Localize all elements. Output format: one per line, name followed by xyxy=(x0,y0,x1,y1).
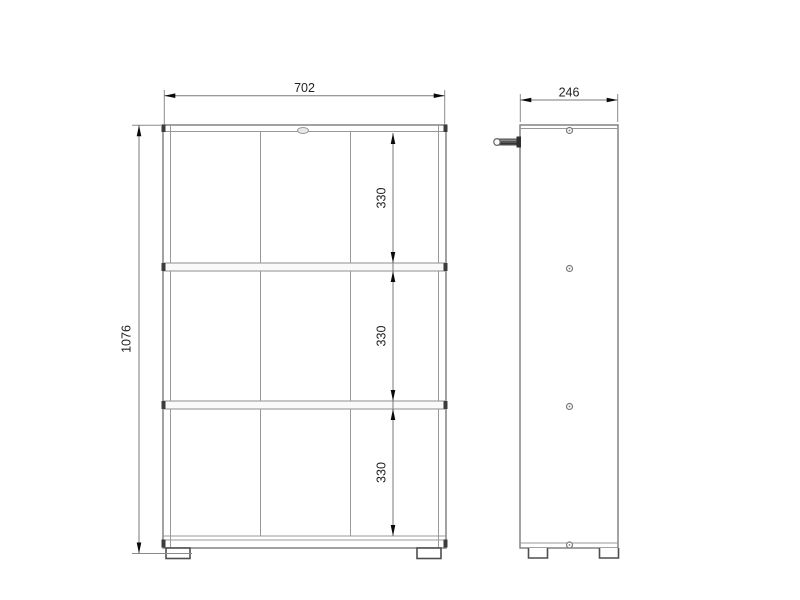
dimension-side-depth: 246 xyxy=(520,86,617,123)
side-depth-label: 246 xyxy=(559,86,580,100)
front-view xyxy=(162,125,448,559)
connector-mark xyxy=(162,540,166,548)
front-height-label: 1076 xyxy=(120,325,134,353)
shelf-spacing-label-3: 330 xyxy=(375,462,389,483)
front-body-outline xyxy=(163,125,446,548)
side-view xyxy=(494,125,619,558)
side-left-foot xyxy=(529,548,548,558)
screw-hole-center xyxy=(569,268,571,270)
connector-mark xyxy=(444,263,448,271)
dimension-front-width: 702 xyxy=(164,81,444,124)
side-body-outline xyxy=(520,125,618,548)
screw-hole-center xyxy=(569,406,571,408)
side-right-foot xyxy=(600,548,619,558)
connector-mark xyxy=(444,540,448,548)
front-width-label: 702 xyxy=(294,81,315,95)
arrowhead-right xyxy=(607,98,618,103)
front-right-foot xyxy=(417,548,441,559)
shelf-spacing-label-1: 330 xyxy=(375,188,389,209)
arrowhead-right xyxy=(434,93,445,98)
connector-mark xyxy=(444,401,448,409)
shelf-spacing-label-2: 330 xyxy=(375,326,389,347)
arrowhead-left xyxy=(164,93,175,98)
technical-drawing-canvas: 702 1076 330 330 330 xyxy=(0,0,800,600)
front-shelf-2 xyxy=(163,401,446,409)
connector-mark xyxy=(162,401,166,409)
connector-mark xyxy=(162,263,166,271)
front-shelf-1 xyxy=(163,263,446,271)
arrowhead-top xyxy=(137,125,142,136)
screw-hole-center xyxy=(569,130,571,132)
connector-mark xyxy=(162,125,166,133)
wall-anchor-peg xyxy=(494,137,521,148)
screw-hole-center xyxy=(569,544,571,546)
arrowhead-bottom xyxy=(137,543,142,554)
front-hanger-notch xyxy=(298,128,309,134)
drawing-svg: 702 1076 330 330 330 xyxy=(0,0,800,600)
peg-end-cap xyxy=(494,139,500,146)
connector-mark xyxy=(444,125,448,133)
arrowhead-left xyxy=(520,98,531,103)
peg-mount-plate xyxy=(517,137,522,148)
